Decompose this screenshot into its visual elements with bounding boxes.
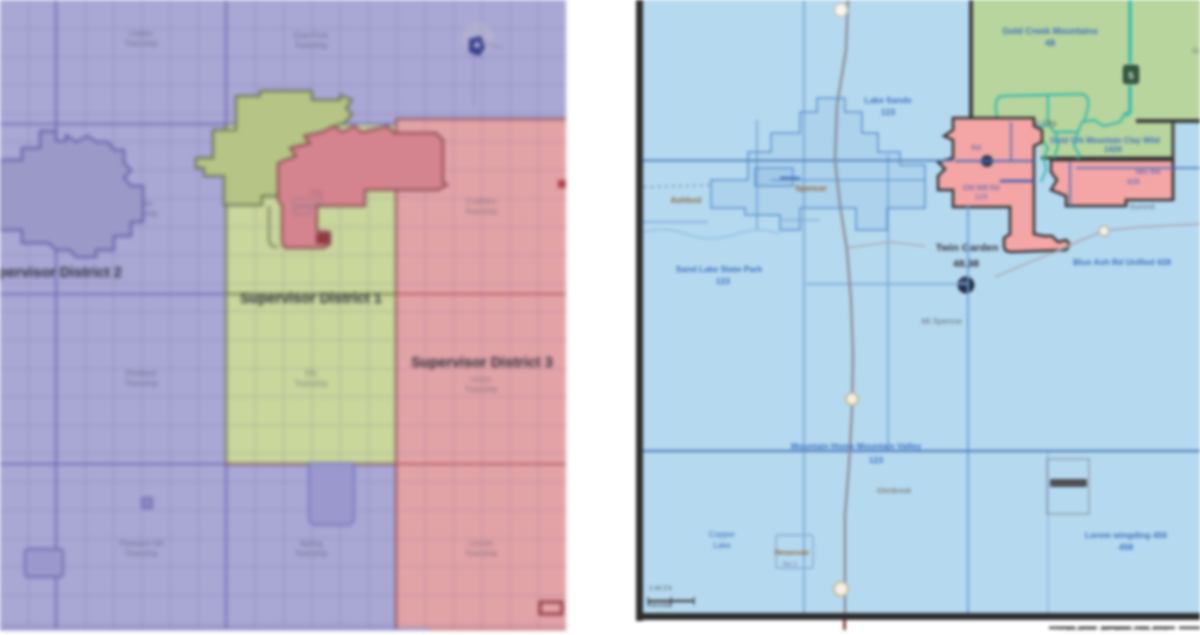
svg-text:Lake: Lake (713, 541, 731, 550)
svg-text:Township: Township (294, 379, 328, 388)
svg-text:Summit: Summit (1129, 202, 1155, 211)
svg-text:Lincoln: Lincoln (468, 539, 493, 548)
svg-text:Township: Township (464, 549, 498, 558)
svg-text:GENERAL HIGHWAY MAP OF: GENERAL HIGHWAY MAP OF (1060, 626, 1170, 630)
svg-text:Mtn Rd: Mtn Rd (1136, 167, 1160, 176)
svg-text:Lake Sands: Lake Sands (864, 95, 912, 105)
svg-text:1 mi 2 k: 1 mi 2 k (649, 585, 673, 592)
svg-text:Glenbrook: Glenbrook (877, 486, 912, 495)
svg-text:458: 458 (1119, 542, 1133, 552)
svg-text:Gold C: Gold C (1192, 48, 1200, 55)
svg-text:Township: Township (294, 549, 328, 558)
svg-text:428: 428 (1127, 177, 1140, 186)
svg-text:Supervisor District 2: Supervisor District 2 (0, 265, 122, 281)
svg-text:Old Mill Rd: Old Mill Rd (963, 183, 1000, 192)
svg-text:Spencer: Spencer (795, 184, 827, 193)
svg-text:123: 123 (869, 455, 883, 465)
svg-text:123: 123 (716, 276, 730, 286)
svg-text:Richland: Richland (125, 369, 156, 378)
svg-text:Crothers: Crothers (466, 197, 497, 206)
svg-text:Ccty: Ccty (310, 189, 324, 196)
svg-text:Reservoir: Reservoir (775, 548, 810, 557)
svg-text:Pleasant Hill: Pleasant Hill (119, 539, 164, 548)
svg-text:5: 5 (1128, 71, 1134, 82)
svg-text:Township: Township (464, 207, 498, 216)
svg-text:Mt Spencer: Mt Spencer (922, 317, 963, 326)
svg-text:Township: Township (294, 41, 328, 50)
svg-text:Twin Garden: Twin Garden (936, 242, 999, 254)
svg-text:No 2: No 2 (783, 561, 797, 568)
svg-text:Rd: Rd (971, 143, 981, 152)
svg-text:Copper: Copper (709, 530, 736, 539)
svg-text:Township: Township (464, 385, 498, 394)
svg-text:Ashford: Ashford (671, 196, 702, 205)
svg-text:Gold Crk Mountain Clay Wild: Gold Crk Mountain Clay Wild (1050, 136, 1160, 145)
svg-text:Spring: Spring (299, 539, 322, 548)
svg-text:1426: 1426 (1104, 145, 1122, 154)
svg-text:Gold Creek Mountains: Gold Creek Mountains (1002, 26, 1098, 36)
svg-text:Township: Township (124, 549, 158, 558)
svg-text:Township: Township (124, 379, 158, 388)
svg-text:Sand Lake State Park: Sand Lake State Park (676, 264, 763, 274)
svg-text:Elk: Elk (305, 369, 317, 378)
svg-text:Blue Ash Rd Unified 428: Blue Ash Rd Unified 428 (1073, 257, 1171, 267)
svg-text:123: 123 (975, 192, 988, 201)
svg-text:48: 48 (1045, 38, 1055, 48)
svg-text:Aerostat: Aerostat (648, 602, 672, 609)
svg-text:Mountain Home Mountain Valley: Mountain Home Mountain Valley (791, 441, 922, 451)
svg-text:Supervisor District 1: Supervisor District 1 (240, 291, 382, 307)
svg-text:Linden: Linden (129, 29, 153, 38)
svg-text:Lorem wingding 456: Lorem wingding 456 (1085, 530, 1167, 540)
svg-text:123: 123 (881, 107, 895, 117)
svg-text:Union: Union (471, 375, 492, 384)
svg-text:East Fork: East Fork (294, 31, 329, 40)
svg-text:Township: Township (124, 39, 158, 48)
svg-text:Supervisor District 3: Supervisor District 3 (411, 355, 553, 371)
svg-text:48.98: 48.98 (953, 258, 979, 270)
